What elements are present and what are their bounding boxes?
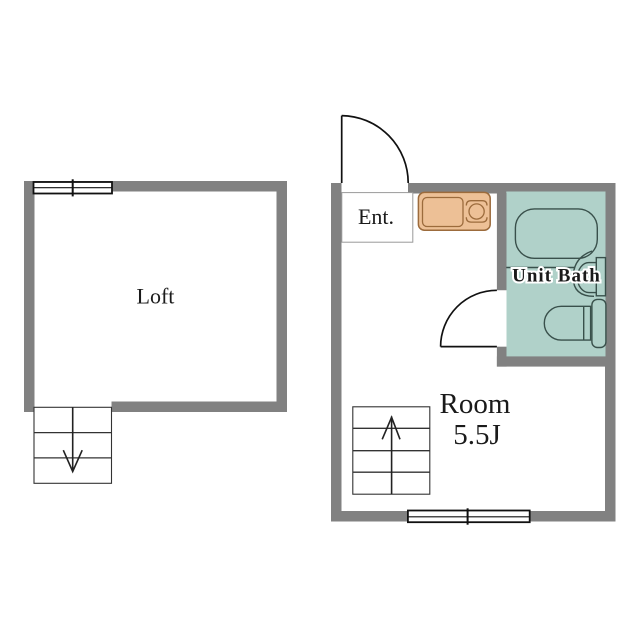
svg-text:Unit Bath: Unit Bath: [512, 266, 601, 287]
svg-text:Loft: Loft: [137, 284, 175, 309]
svg-text:Ent.: Ent.: [358, 204, 394, 229]
svg-text:5.5J: 5.5J: [453, 419, 501, 451]
svg-text:Room: Room: [440, 388, 511, 420]
